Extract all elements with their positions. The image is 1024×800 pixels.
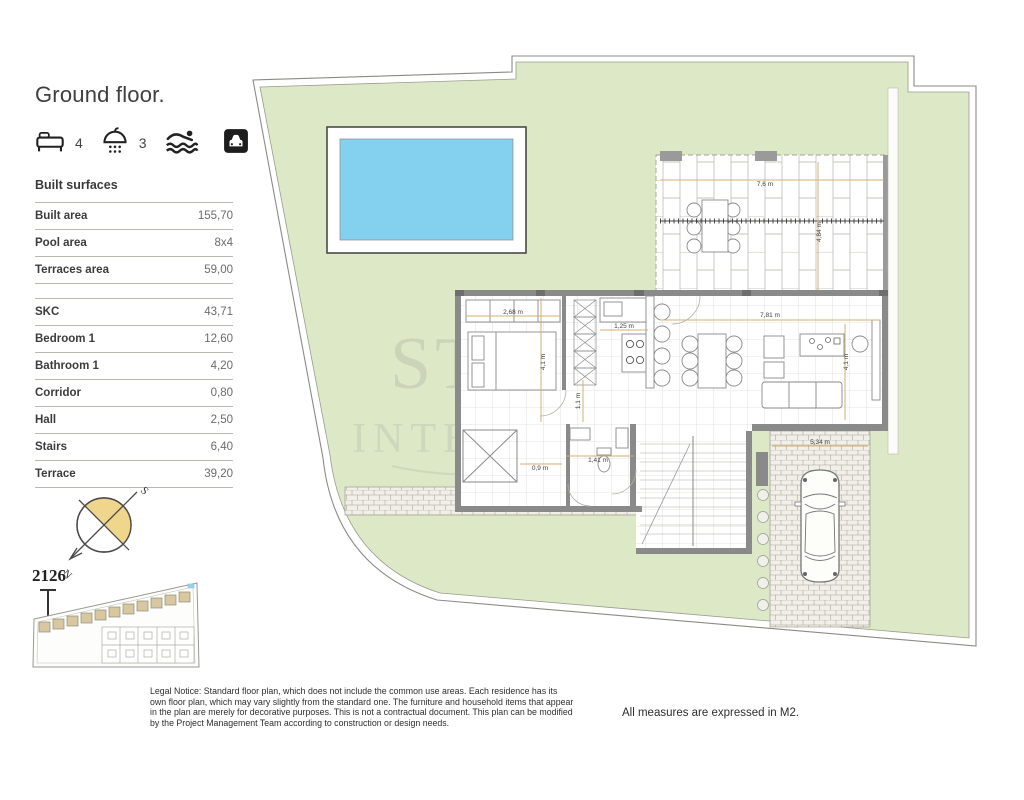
row-value: 59,00 bbox=[204, 264, 233, 276]
table-row: Corridor 0,80 bbox=[35, 379, 233, 406]
dim-living-width: 7,81 m bbox=[760, 312, 780, 319]
table-row: Bathroom 1 4,20 bbox=[35, 352, 233, 379]
dim-bedroom-width: 2,68 m bbox=[503, 309, 523, 316]
row-label: Pool area bbox=[35, 237, 87, 249]
row-value: 2,50 bbox=[211, 414, 233, 426]
page-title: Ground floor. bbox=[35, 82, 165, 108]
floor-plan-page: Ground floor. 4 3 bbox=[0, 0, 1024, 800]
site-pool-mark bbox=[188, 584, 194, 588]
table-row: Hall 2,50 bbox=[35, 406, 233, 433]
table-row: Built area 155,70 bbox=[35, 202, 233, 229]
dim-patio-width: 0,9 m bbox=[532, 465, 548, 472]
bedroom-count: 4 bbox=[75, 135, 83, 151]
terrace-column bbox=[660, 151, 682, 161]
row-value: 39,20 bbox=[204, 468, 233, 480]
table-row: Terraces area 59,00 bbox=[35, 256, 233, 284]
row-label: Corridor bbox=[35, 387, 81, 399]
row-value: 12,60 bbox=[204, 333, 233, 345]
stool bbox=[654, 326, 670, 342]
compass-south-label: S bbox=[138, 485, 150, 498]
row-label: Bedroom 1 bbox=[35, 333, 95, 345]
table-row: Bedroom 1 12,60 bbox=[35, 325, 233, 352]
side-table bbox=[852, 336, 868, 352]
site-plan-map bbox=[28, 575, 208, 675]
coffee-table bbox=[764, 362, 784, 378]
table-row: Pool area 8x4 bbox=[35, 229, 233, 256]
stool bbox=[654, 304, 670, 320]
floor-plan-drawing: ST INTERNA bbox=[240, 40, 1024, 680]
compass: S N bbox=[58, 478, 150, 582]
bed-icon bbox=[35, 129, 65, 158]
stove bbox=[622, 334, 646, 372]
row-value: 43,71 bbox=[204, 306, 233, 318]
row-value: 155,70 bbox=[198, 210, 233, 222]
measures-note: All measures are expressed in M2. bbox=[622, 707, 799, 719]
dim-bedroom-depth: 4,1 m bbox=[540, 354, 547, 370]
feature-icons-row: 4 3 bbox=[35, 128, 249, 158]
built-surfaces-label: Built surfaces bbox=[35, 178, 118, 192]
surfaces-summary-table: Built area 155,70 Pool area 8x4 Terraces… bbox=[35, 202, 233, 284]
row-value: 4,20 bbox=[211, 360, 233, 372]
table-row: SKC 43,71 bbox=[35, 298, 233, 325]
stool bbox=[654, 348, 670, 364]
terrace: 7,6 m 4,84 m bbox=[656, 151, 889, 292]
dim-corridor-width: 1,1 m bbox=[575, 393, 582, 409]
table-row: Stairs 6,40 bbox=[35, 433, 233, 460]
row-label: Hall bbox=[35, 414, 56, 426]
cabinet bbox=[616, 428, 628, 448]
row-label: Bathroom 1 bbox=[35, 360, 99, 372]
bathroom-count: 3 bbox=[139, 135, 147, 151]
row-value: 6,40 bbox=[211, 441, 233, 453]
stool bbox=[654, 370, 670, 386]
row-value: 8x4 bbox=[214, 237, 233, 249]
coffee-table bbox=[764, 336, 784, 358]
dim-living-depth: 4,1 m bbox=[843, 354, 850, 370]
toilet-tank bbox=[597, 448, 611, 455]
row-label: SKC bbox=[35, 306, 59, 318]
row-label: Built area bbox=[35, 210, 87, 222]
outdoor-dining-set bbox=[687, 200, 740, 253]
washbasin bbox=[570, 428, 590, 440]
car bbox=[795, 470, 845, 582]
legal-notice: Legal Notice: Standard floor plan, which… bbox=[150, 686, 574, 728]
rooms-table: SKC 43,71 Bedroom 1 12,60 Bathroom 1 4,2… bbox=[35, 298, 233, 488]
site-houses-lower-block bbox=[102, 627, 194, 663]
dim-hall-width: 1,41 m bbox=[588, 457, 608, 464]
shower-icon bbox=[101, 127, 129, 160]
row-label: Stairs bbox=[35, 441, 67, 453]
terrace-column bbox=[755, 151, 777, 161]
side-path bbox=[888, 88, 898, 454]
dim-driveway-width: 5,34 m bbox=[810, 439, 830, 446]
dim-terrace-depth: 4,84 m bbox=[816, 222, 823, 242]
row-value: 0,80 bbox=[211, 387, 233, 399]
tv-unit bbox=[872, 320, 880, 400]
driveway: 5,34 m bbox=[756, 431, 870, 627]
swimmer-icon bbox=[165, 128, 199, 159]
row-label: Terraces area bbox=[35, 264, 109, 276]
swimming-pool bbox=[327, 127, 526, 253]
sofa bbox=[762, 382, 842, 408]
island-counter bbox=[646, 296, 654, 388]
sink bbox=[604, 302, 622, 316]
dim-terrace-width: 7,6 m bbox=[757, 181, 773, 188]
dining-set bbox=[682, 334, 742, 388]
dim-kitchen-width: 1,25 m bbox=[614, 323, 634, 330]
